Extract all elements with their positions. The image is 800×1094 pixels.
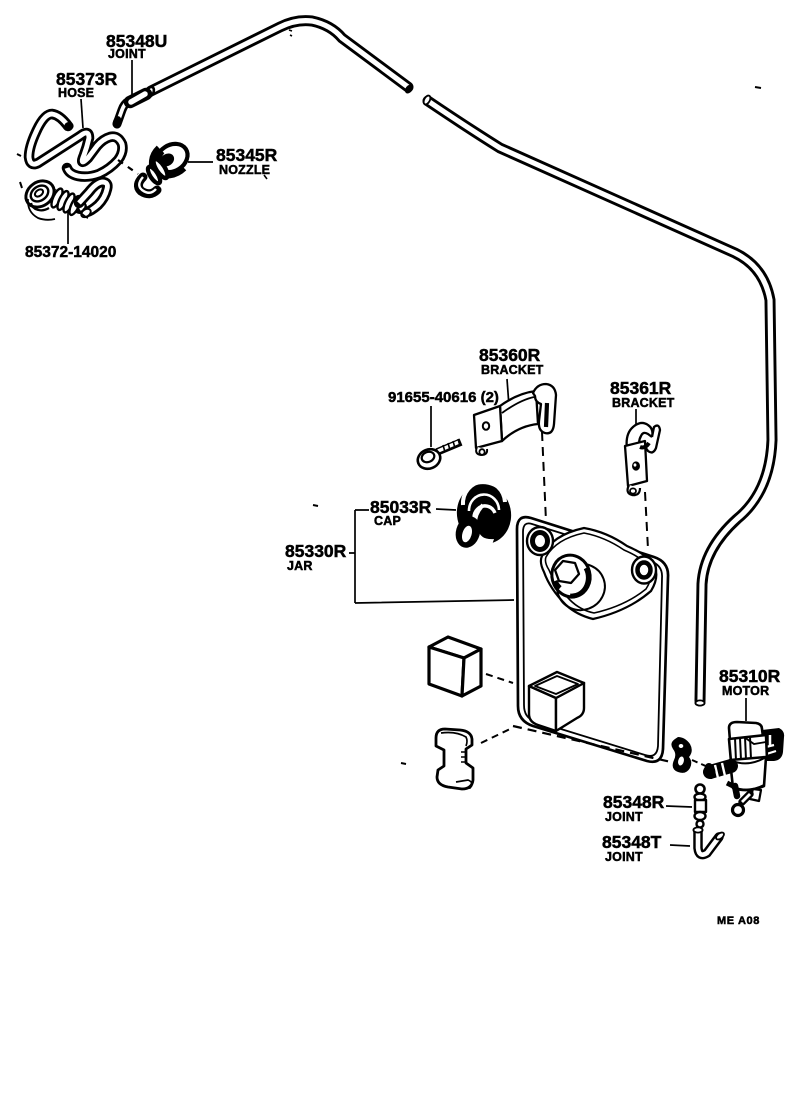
svg-text:85361R: 85361R [610, 378, 672, 398]
svg-text:85330R: 85330R [285, 541, 347, 561]
svg-text:MOTOR: MOTOR [722, 684, 769, 698]
svg-text:JOINT: JOINT [605, 850, 643, 864]
svg-text:JAR: JAR [287, 559, 313, 573]
svg-text:CAP: CAP [374, 514, 401, 528]
svg-text:BRACKET: BRACKET [612, 396, 675, 410]
svg-text:85310R: 85310R [719, 666, 781, 686]
svg-text:85348R: 85348R [603, 792, 665, 812]
svg-text:NOZZLE: NOZZLE [219, 163, 270, 177]
svg-text:91655-40616 (2): 91655-40616 (2) [388, 389, 499, 406]
svg-text:85345R: 85345R [216, 145, 278, 165]
svg-text:JOINT: JOINT [108, 47, 146, 61]
svg-text:85360R: 85360R [479, 345, 541, 365]
svg-text:85348T: 85348T [602, 832, 662, 852]
svg-text:ME A08: ME A08 [717, 915, 760, 927]
svg-text:JOINT: JOINT [605, 810, 643, 824]
svg-text:BRACKET: BRACKET [481, 363, 544, 377]
svg-text:85372-14020: 85372-14020 [25, 244, 116, 261]
svg-text:HOSE: HOSE [58, 86, 94, 100]
